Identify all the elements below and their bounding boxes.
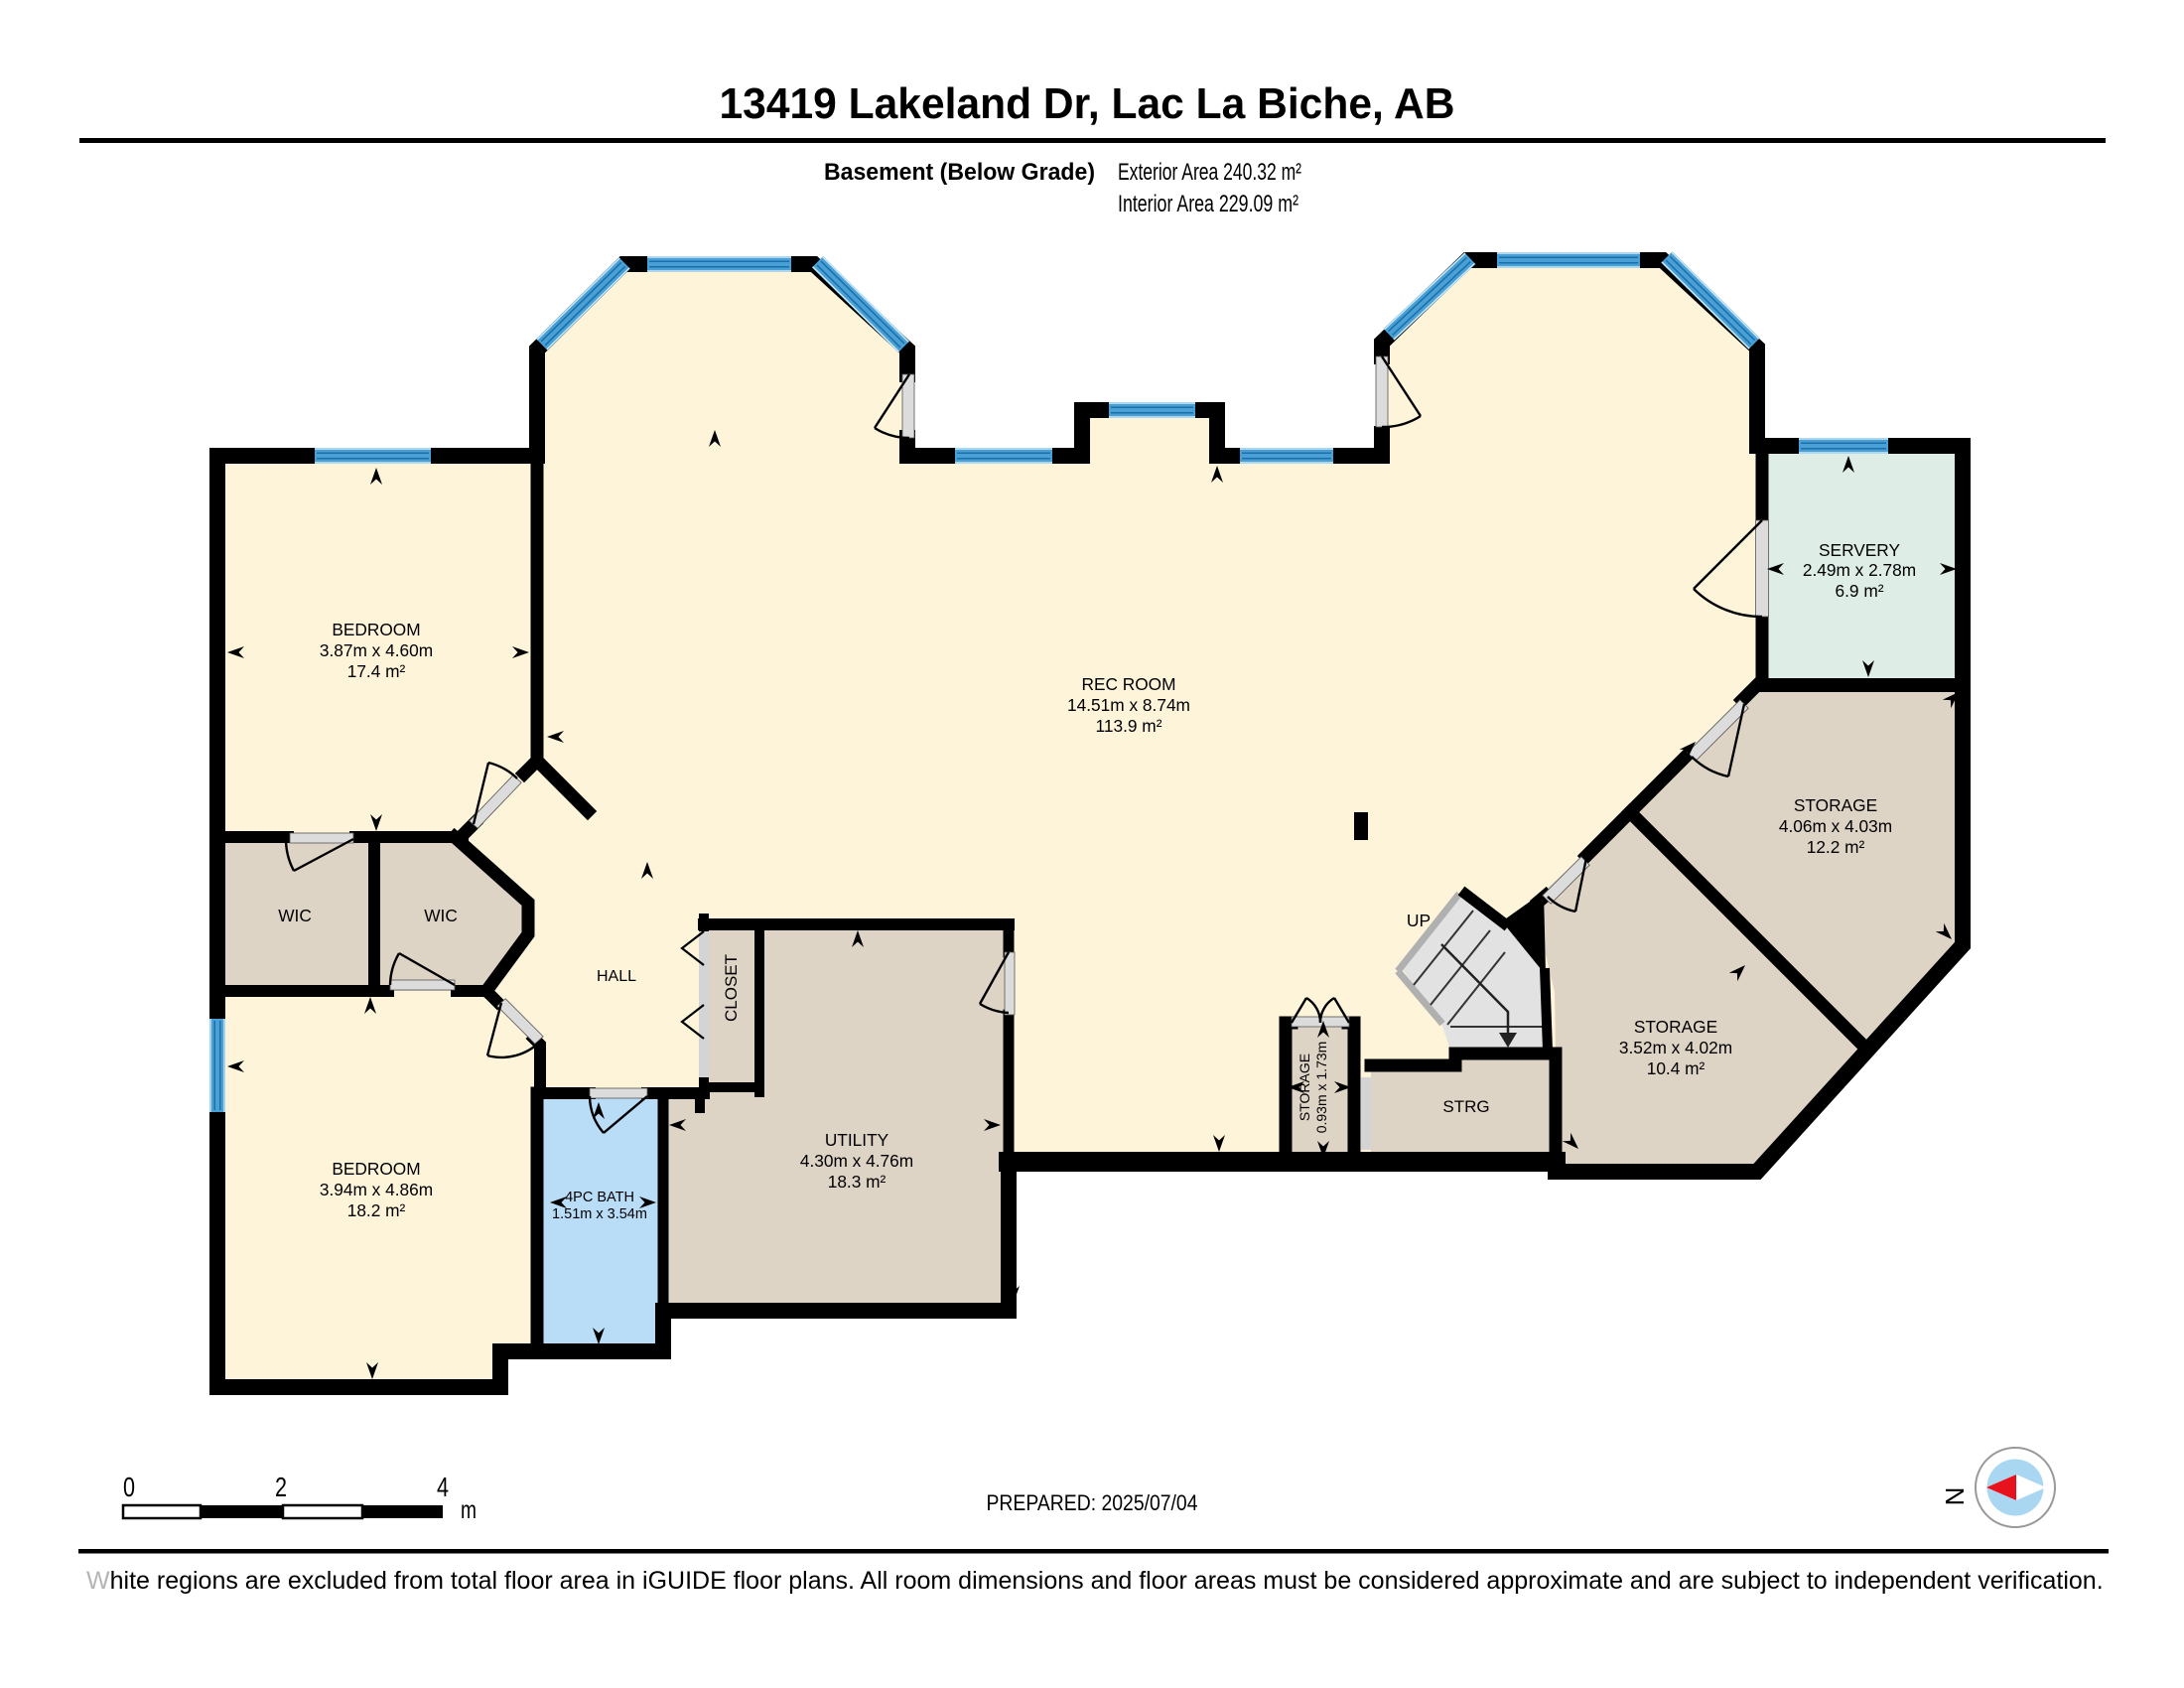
svg-text:12.2 m²: 12.2 m² [1807, 837, 1865, 857]
svg-text:4PC BATH: 4PC BATH [565, 1190, 634, 1205]
svg-text:N: N [1940, 1487, 1970, 1506]
svg-text:UP: UP [1407, 911, 1431, 930]
svg-text:HALL: HALL [597, 968, 636, 985]
svg-text:18.3 m²: 18.3 m² [828, 1172, 887, 1192]
svg-text:UTILITY: UTILITY [825, 1130, 889, 1150]
svg-text:18.2 m²: 18.2 m² [347, 1200, 406, 1220]
svg-text:4.06m x 4.03m: 4.06m x 4.03m [1779, 816, 1892, 836]
svg-text:Interior Area 229.09 m²: Interior Area 229.09 m² [1118, 191, 1298, 217]
svg-text:0.93m x 1.73m: 0.93m x 1.73m [1313, 1042, 1329, 1134]
svg-text:14.51m x 8.74m: 14.51m x 8.74m [1067, 695, 1190, 715]
svg-text:1.51m x 3.54m: 1.51m x 3.54m [552, 1206, 647, 1222]
svg-text:STORAGE: STORAGE [1634, 1017, 1717, 1037]
svg-text:3.94m x 4.86m: 3.94m x 4.86m [320, 1180, 433, 1199]
svg-text:WIC: WIC [424, 906, 458, 925]
svg-text:10.4 m²: 10.4 m² [1647, 1058, 1706, 1078]
svg-text:STORAGE: STORAGE [1297, 1054, 1312, 1121]
svg-text:Basement (Below Grade): Basement (Below Grade) [824, 159, 1095, 186]
svg-text:3.52m x 4.02m: 3.52m x 4.02m [1619, 1038, 1732, 1057]
svg-text:2: 2 [275, 1472, 287, 1502]
svg-text:6.9 m²: 6.9 m² [1836, 581, 1884, 601]
svg-text:PREPARED: 2025/07/04: PREPARED: 2025/07/04 [987, 1490, 1198, 1515]
svg-text:STORAGE: STORAGE [1794, 795, 1877, 815]
svg-text:2.49m x 2.78m: 2.49m x 2.78m [1803, 560, 1916, 580]
svg-text:REC ROOM: REC ROOM [1081, 674, 1175, 694]
svg-text:CLOSET: CLOSET [722, 954, 741, 1022]
svg-text:WIC: WIC [278, 906, 312, 925]
svg-text:3.87m x 4.60m: 3.87m x 4.60m [320, 640, 433, 660]
svg-text:113.9 m²: 113.9 m² [1096, 716, 1162, 736]
svg-text:SERVERY: SERVERY [1819, 540, 1900, 560]
svg-text:Exterior Area 240.32 m²: Exterior Area 240.32 m² [1118, 159, 1301, 186]
svg-text:BEDROOM: BEDROOM [332, 1159, 420, 1179]
svg-text:White regions are excluded fro: White regions are excluded from total fl… [86, 1567, 2104, 1595]
svg-text:13419 Lakeland Dr, Lac La Bich: 13419 Lakeland Dr, Lac La Biche, AB [720, 79, 1455, 128]
svg-text:m: m [461, 1496, 477, 1524]
svg-text:17.4 m²: 17.4 m² [347, 661, 406, 681]
svg-text:BEDROOM: BEDROOM [332, 620, 420, 639]
svg-text:STRG: STRG [1442, 1097, 1489, 1116]
svg-text:4.30m x 4.76m: 4.30m x 4.76m [800, 1151, 913, 1171]
svg-text:4: 4 [437, 1472, 449, 1502]
svg-text:0: 0 [123, 1472, 135, 1502]
